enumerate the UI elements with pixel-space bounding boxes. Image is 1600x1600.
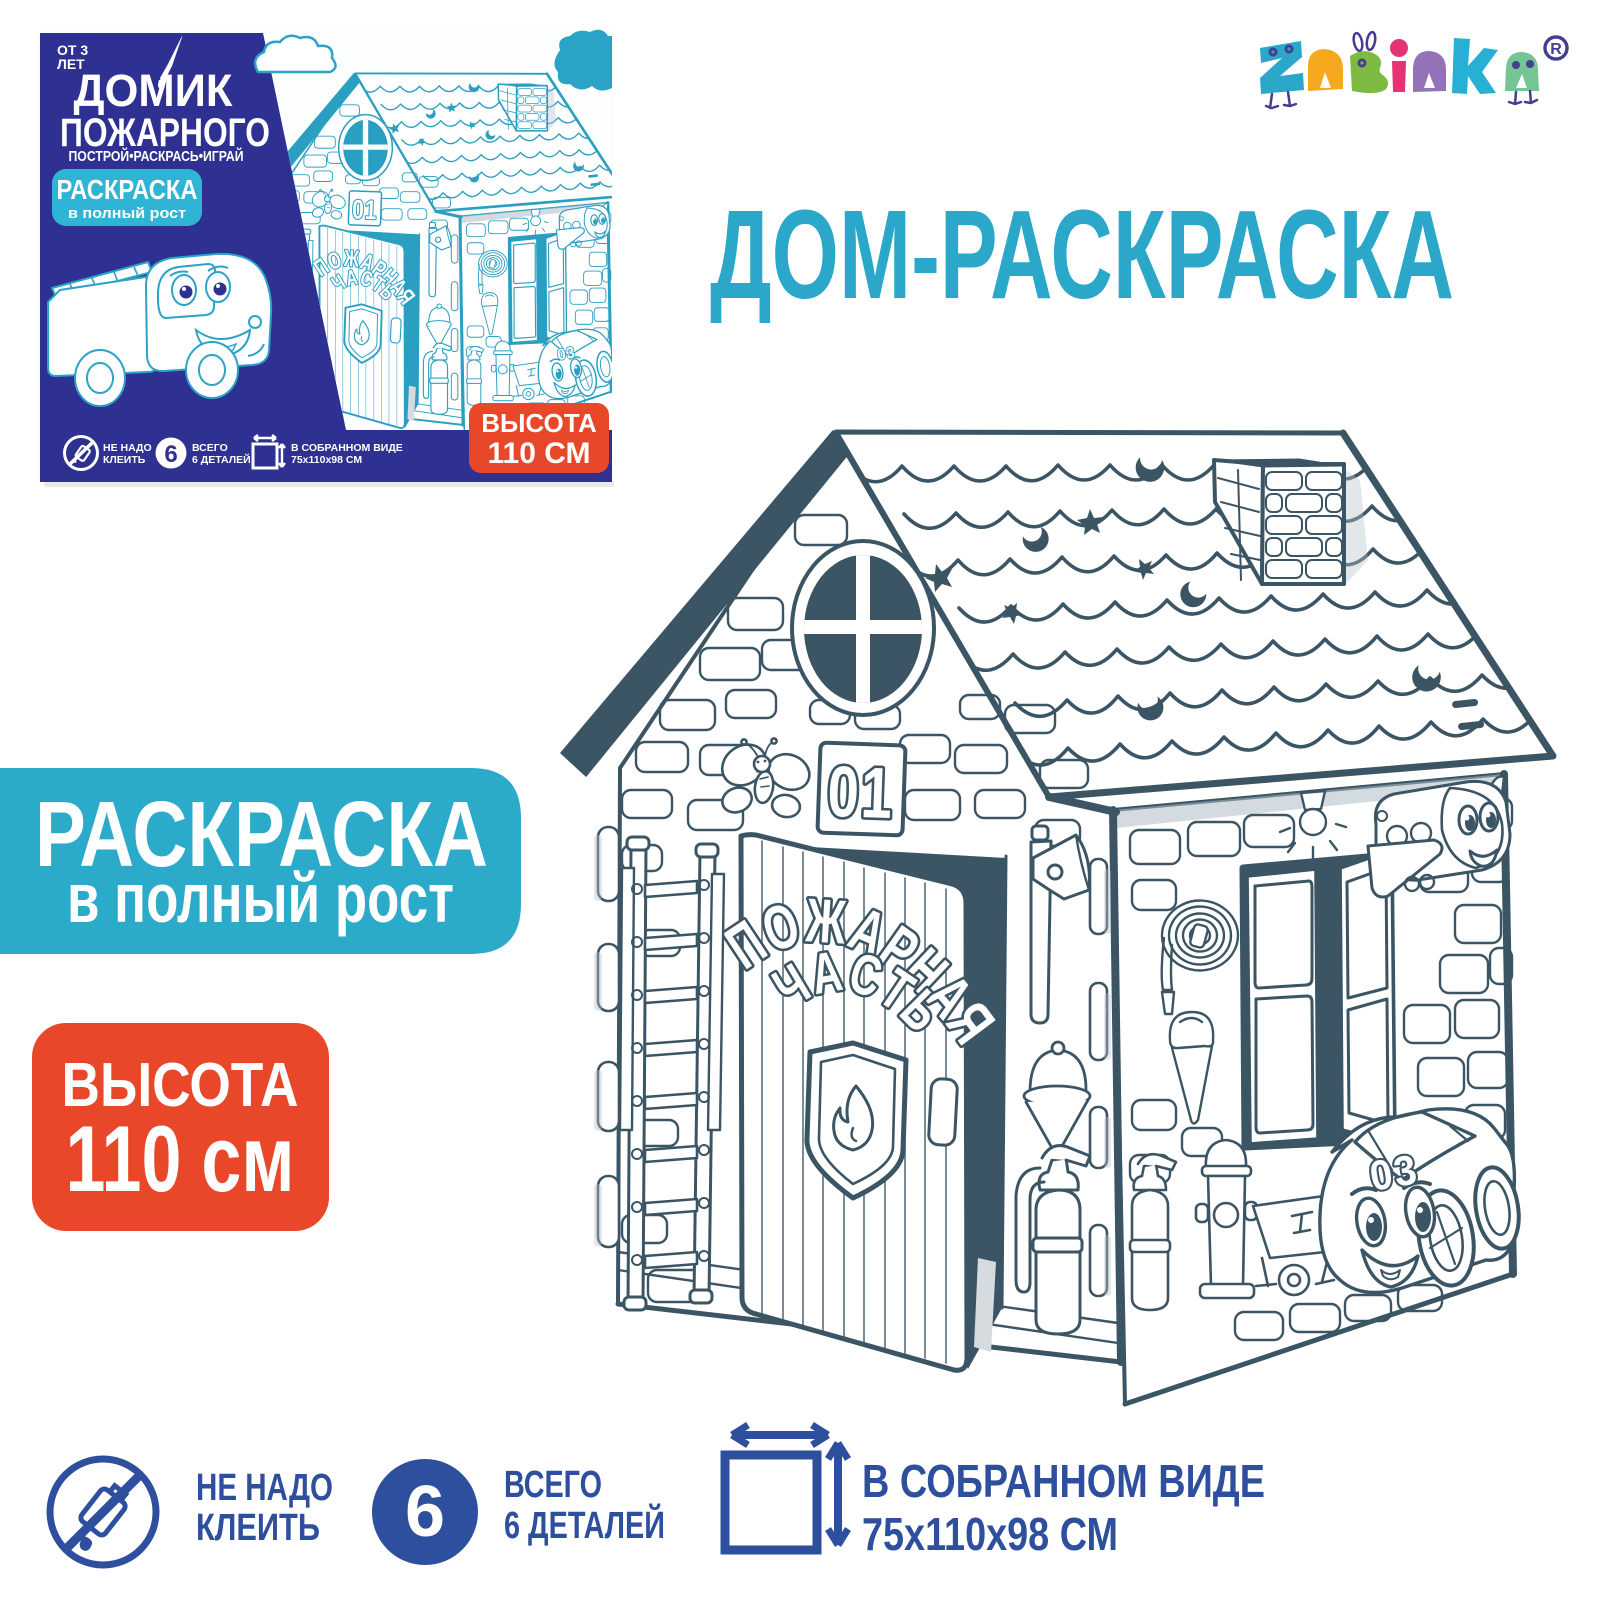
svg-text:в полный рост: в полный рост bbox=[68, 205, 186, 222]
svg-text:75х110х98 СМ: 75х110х98 СМ bbox=[291, 454, 362, 466]
svg-text:НЕ НАДО: НЕ НАДО bbox=[196, 1467, 333, 1509]
svg-text:ПОСТРОЙ•РАСКРАСЬ•ИГРАЙ: ПОСТРОЙ•РАСКРАСЬ•ИГРАЙ bbox=[69, 147, 244, 165]
svg-text:в полный рост: в полный рост bbox=[67, 859, 454, 937]
svg-text:ВЫСОТА: ВЫСОТА bbox=[481, 408, 597, 438]
svg-text:КЛЕИТЬ: КЛЕИТЬ bbox=[196, 1507, 320, 1549]
svg-text:75х110х98 СМ: 75х110х98 СМ bbox=[862, 1508, 1118, 1560]
svg-text:6 ДЕТАЛЕЙ: 6 ДЕТАЛЕЙ bbox=[504, 1502, 665, 1547]
svg-text:В СОБРАННОМ ВИДЕ: В СОБРАННОМ ВИДЕ bbox=[291, 442, 403, 454]
svg-text:110 СМ: 110 СМ bbox=[488, 437, 591, 470]
svg-text:ДОМ-РАСКРАСКА: ДОМ-РАСКРАСКА bbox=[710, 184, 1454, 325]
svg-text:6: 6 bbox=[164, 441, 177, 468]
svg-text:ВСЕГО: ВСЕГО bbox=[504, 1464, 602, 1506]
svg-text:ВСЕГО: ВСЕГО bbox=[192, 442, 228, 454]
svg-text:R: R bbox=[1550, 41, 1562, 58]
svg-text:6: 6 bbox=[405, 1472, 445, 1552]
svg-text:НЕ НАДО: НЕ НАДО bbox=[103, 442, 152, 454]
svg-text:ДОМИК: ДОМИК bbox=[74, 65, 234, 116]
svg-text:6 ДЕТАЛЕЙ: 6 ДЕТАЛЕЙ bbox=[192, 453, 251, 466]
svg-text:110 см: 110 см bbox=[66, 1106, 295, 1211]
svg-text:В СОБРАННОМ ВИДЕ: В СОБРАННОМ ВИДЕ bbox=[862, 1455, 1265, 1507]
svg-text:КЛЕИТЬ: КЛЕИТЬ bbox=[103, 454, 146, 466]
svg-text:РАСКРАСКА: РАСКРАСКА bbox=[57, 174, 198, 205]
